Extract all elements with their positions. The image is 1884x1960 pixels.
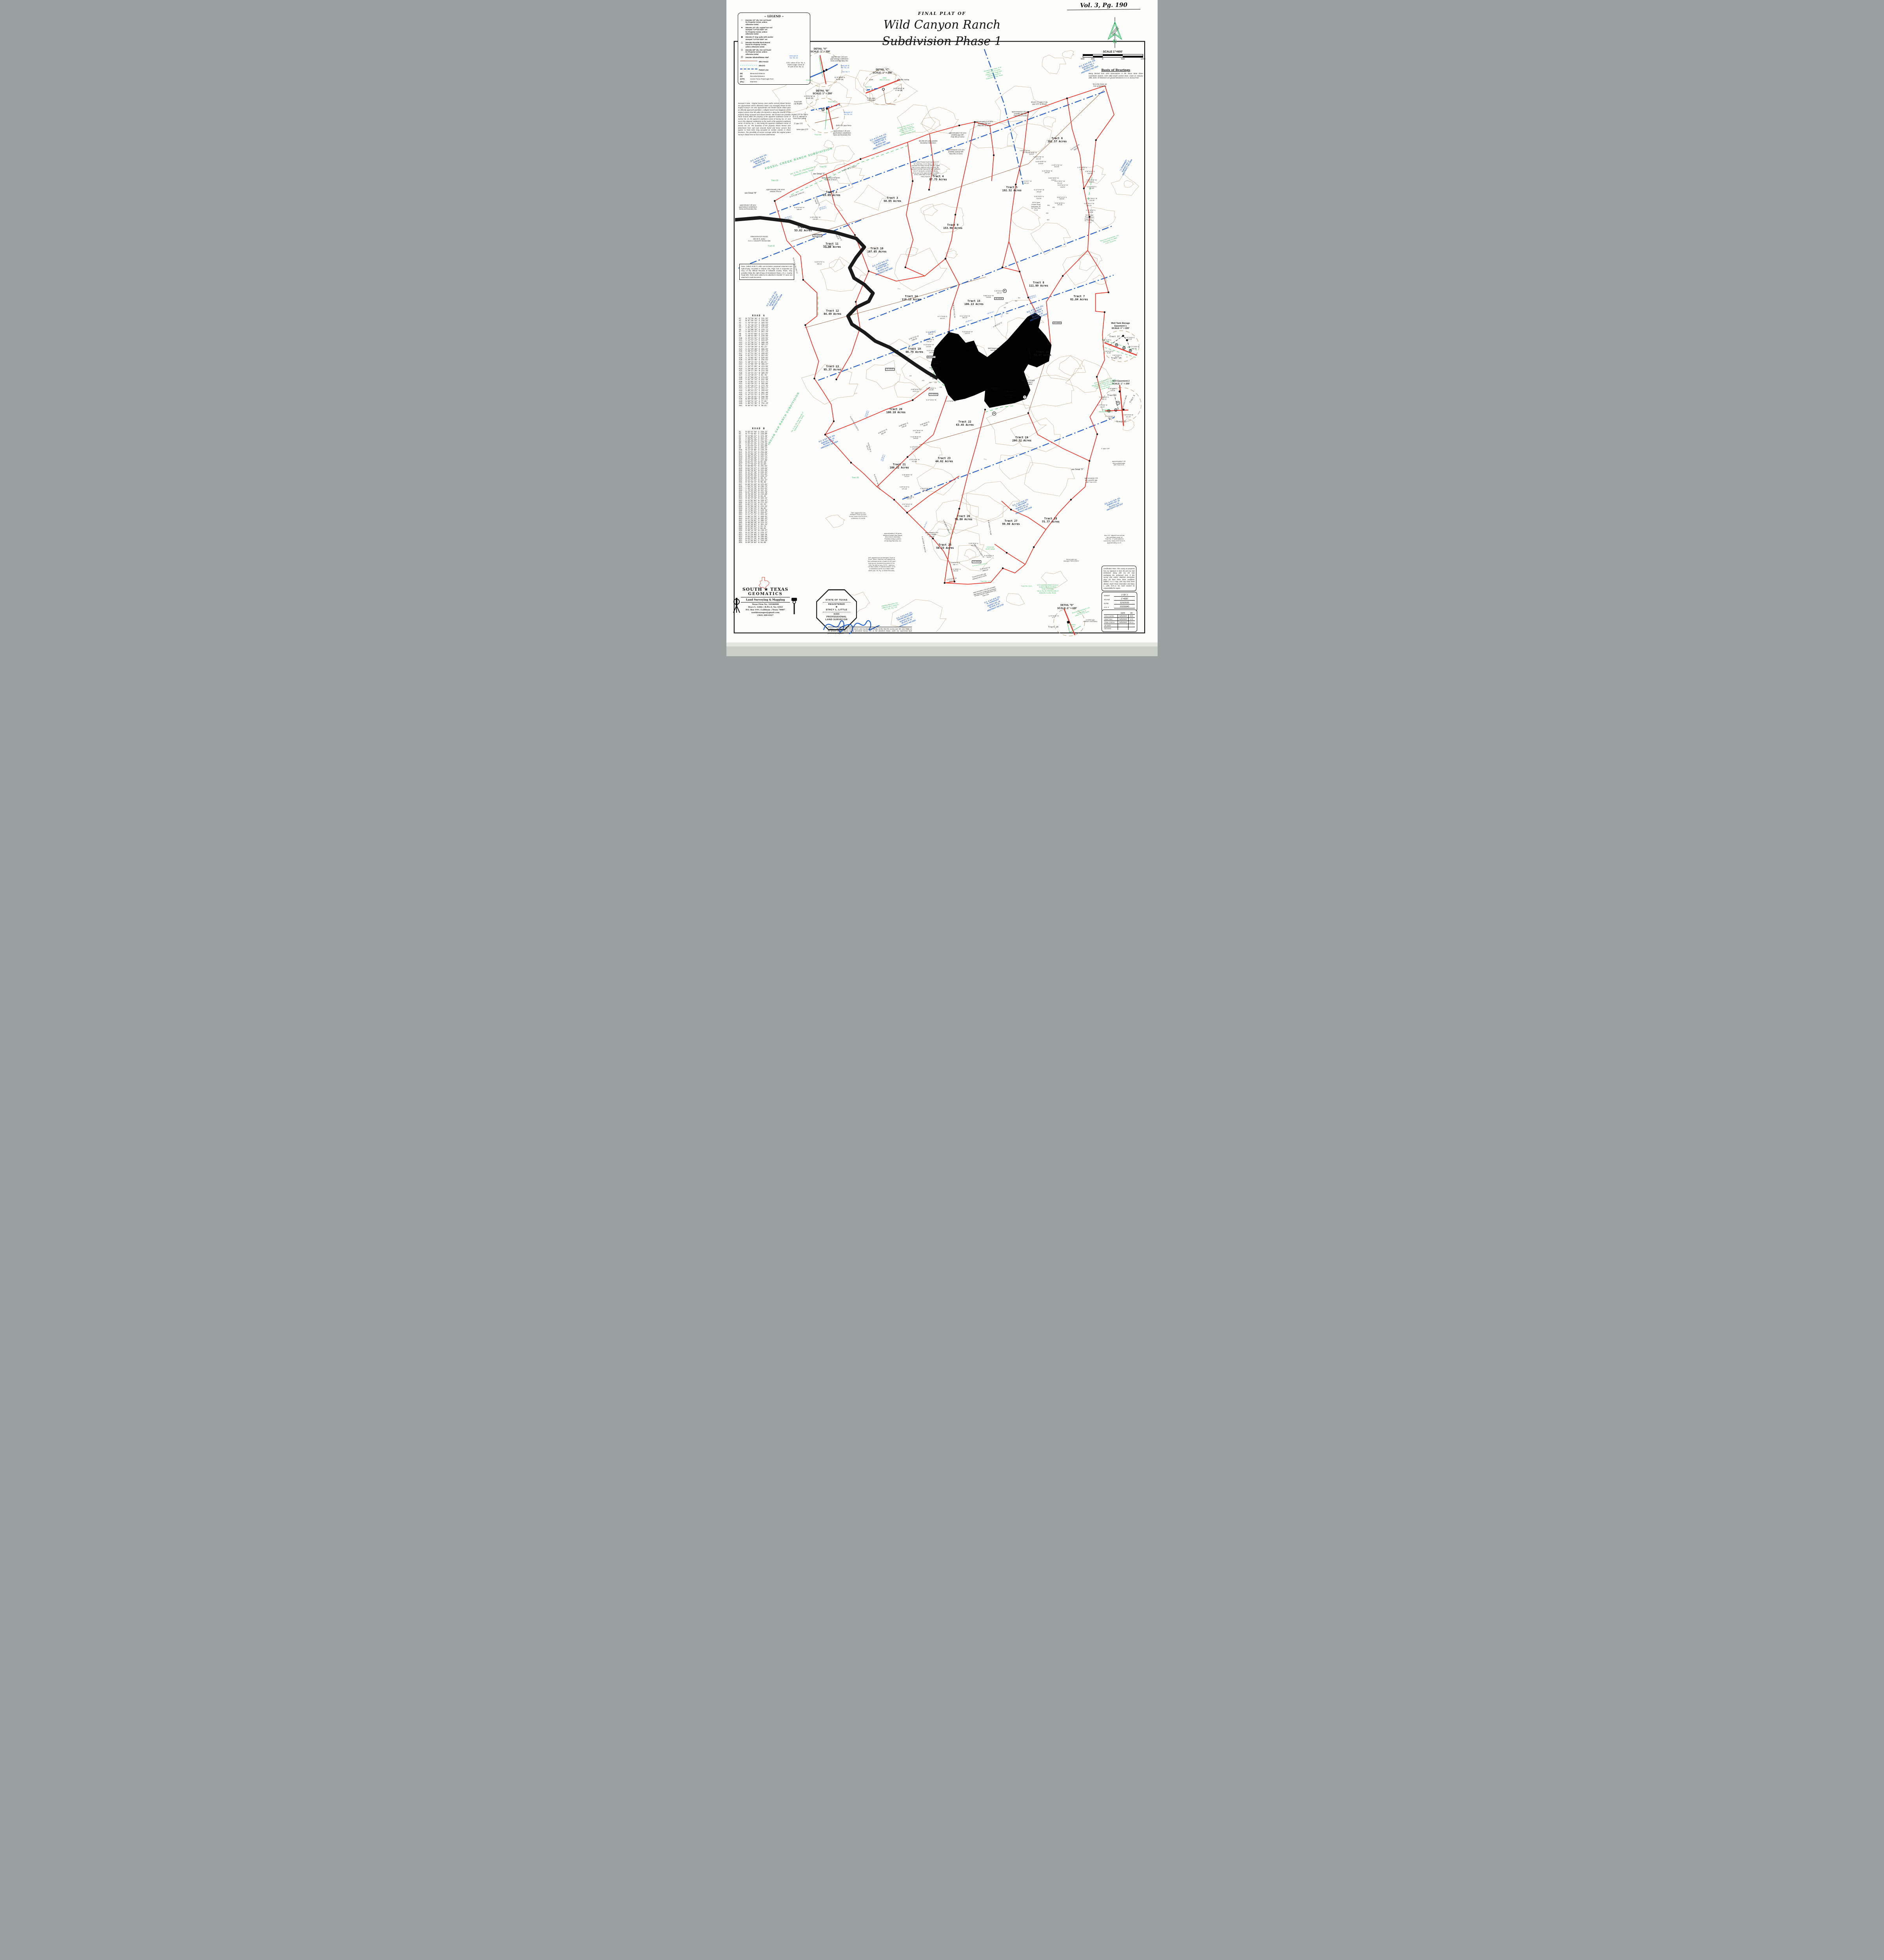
logo-tagline: Land Surveying & Mapping [739,598,793,601]
legend-item: ◎Denotes 5/8" dia. iron rod found for Pr… [740,49,808,55]
theodolite-icon [732,597,741,613]
basis-of-bearings: Basis of Bearings Being derived from GPS… [1089,68,1143,79]
legend-linetype: Patent Line [740,68,808,71]
legend-linetype-label: Patent Line [759,69,769,71]
legend-linetype-label: Electric [759,65,766,67]
legend-item-text: Denotes 5/8" dia. iron rod found for Pro… [746,49,771,55]
legend-item-text: Denotes 1/2" dia. capped iron rod stampe… [746,27,772,35]
logo-contact-line: Texas Firm No. 10186900 [739,603,793,606]
plat-sheet: Vol. 3, Pg. 190 FINAL PLAT OF Wild Canyo… [726,0,1158,656]
scale-tick: 600 [1121,58,1125,60]
stamp-line: STATE OF TEXAS [826,599,848,601]
volume-page-annotation: Vol. 3, Pg. 190 [1067,1,1140,10]
logo-contact-lines: Texas Firm No. 10186900Stacy L. Little |… [739,603,793,617]
road-course-row: B56N 09°20'04" W84.08' [739,542,779,544]
basis-body: Being derived from GPS observations in t… [1089,73,1143,79]
logo-contact-line: Stacy L. Little | R.P.L.S. No. 6163 [739,606,793,609]
legend-title: ~ LEGEND ~ [740,15,808,18]
road-a-title: ROAD A [739,314,779,317]
legend-item-text: Denotes Possible Rock Mound found for Pr… [746,42,770,48]
scan-edge [726,646,1158,656]
gps-rover-icon [791,597,798,614]
scale-tick: 600 [1081,58,1084,60]
boundary-lines [775,86,1114,584]
legend-item: △Denotes Possible Rock Mound found for P… [740,42,808,48]
legend-item: ⓌDenotes Windmill/Water Well [740,56,808,59]
easement-note: Note: Called 40.00 ft. wide non-exclusiv… [739,264,794,280]
work-log-row: REVISED [1104,627,1135,630]
stamp-line: REGISTERED [828,603,845,606]
legend-item: ●Denotes 1/2" dia. capped iron rod stamp… [740,27,808,35]
legend-symbol-icon: ◉ [740,36,744,40]
redacted-area [931,312,1051,408]
legend-linetype-label: Wire Fence [759,61,768,63]
north-arrow-icon: N [1104,17,1126,50]
scale-tick: 0 [1102,58,1103,60]
legend-abbreviation: (R)Recorded Distance [740,75,808,77]
scale-tick: 1200 [1140,58,1145,60]
work-log-row: FINAL CHECK11/5/2020S.L.L. [1104,621,1135,624]
legend-item: ◉Denotes 8" long spike with washer stamp… [740,36,808,40]
scale-tick: 300 [1091,58,1094,60]
title-kicker: FINAL PLAT OF [869,11,1015,16]
scale-bar-ticks: 60030006001200 [1083,58,1143,61]
legend: ~ LEGEND ~ ○Denotes 1/2" dia. iron rod f… [738,13,811,85]
logo-brand-bottom: GEOMATICS [739,592,793,596]
legend-linetype: Electric [740,64,808,67]
legend-item: ○Denotes 1/2" dia. iron rod found for Pr… [740,19,808,25]
work-log-header [1104,612,1118,615]
certification-text: I, Stacy L. Little, Registered Professio… [828,627,912,635]
sheet-info-row: DATE11/5/2020 [1104,602,1135,604]
legend-item-text: Denotes 1/2" dia. iron rod found for Pro… [746,19,771,25]
legend-abbreviation: (CFP)Corner Fence Post/Angle Post [740,78,808,80]
map-linework [726,0,1158,656]
north-letter: N [1113,38,1117,44]
legend-linetype: Wire Fence [740,60,808,63]
scale-bar-row2 [1083,56,1143,58]
road-b-table: ROAD B B1N 04°47'50" E258.23'B2N 77°56'0… [739,428,779,544]
sheet-info-box: SHEET2 OF 2SCALE1"=600'DATE11/5/2020J.O.… [1102,592,1137,612]
work-log-row: DRAFTING11/5/2020L.G. [1104,618,1135,621]
patent-line-icon [740,69,757,71]
page-title-line2: Subdivision Phase 1 [869,34,1015,49]
work-log-header: DATE [1118,612,1128,615]
scale-bar: SCALE 1"=600' 60030006001200 [1083,51,1143,61]
road-b-title: ROAD B [739,428,779,430]
legend-item-text: Denotes Windmill/Water Well [746,56,769,59]
sheet-info-row: SHEET2 OF 2 [1104,594,1135,597]
work-log-header: BY [1128,612,1135,615]
basis-title: Basis of Bearings [1089,68,1143,72]
legend-symbol-icon: Ⓦ [740,56,744,59]
work-log-table: DATEBY FIELD WORK11/5/2020M.D.DRAFTING11… [1104,612,1135,630]
work-log-row: FIELD WORK11/5/2020M.D. [1104,615,1135,618]
logo-contact-line: (361) 449-0327 [739,614,793,617]
legend-symbol-icon: △ [740,42,744,48]
legend-symbol-icon: ◎ [740,49,744,55]
legend-item-text: Denotes 8" long spike with washer stampe… [746,36,773,40]
sheet-info-row: SCALE1"=600' [1104,598,1135,601]
work-log-box: DATEBY FIELD WORK11/5/2020M.D.DRAFTING11… [1102,610,1137,632]
sheet-info-row: J.O. #20200040 [1104,606,1135,608]
scale-bar-title: SCALE 1"=600' [1083,51,1143,53]
legend-abbreviation: (M)Measured Distance [740,73,808,74]
certification-note: Certification Note: This survey as prepa… [1102,566,1136,591]
electric-line-icon [740,65,757,67]
company-logo: SOUTH ★ TEXAS GEOMATICS Land Surveying &… [739,587,793,617]
stamp-line: ★ [835,606,838,608]
scan-artifact [726,642,1158,646]
work-log-row: UP DATE [1104,624,1135,627]
road-course-row: A41N 04°47'50" E30.01' [739,405,779,407]
road-a-table: ROAD A A1N 73°50'30" E121.95'A2N 87°46'1… [739,314,779,407]
legend-symbol-icon: ○ [740,19,744,25]
legend-symbol-icon: ● [740,27,744,35]
title-block: FINAL PLAT OF Wild Canyon Ranch Subdivis… [869,11,1015,49]
legend-abbreviation: (dia.)Diameter [740,81,808,83]
wire-line-icon [740,61,757,63]
page-title-line1: Wild Canyon Ranch [869,18,1015,33]
map-border [734,42,1145,633]
surveyors-note: Surveyor's Note : Original Survey Lines … [738,102,791,136]
texas-outline-icon [757,577,770,590]
